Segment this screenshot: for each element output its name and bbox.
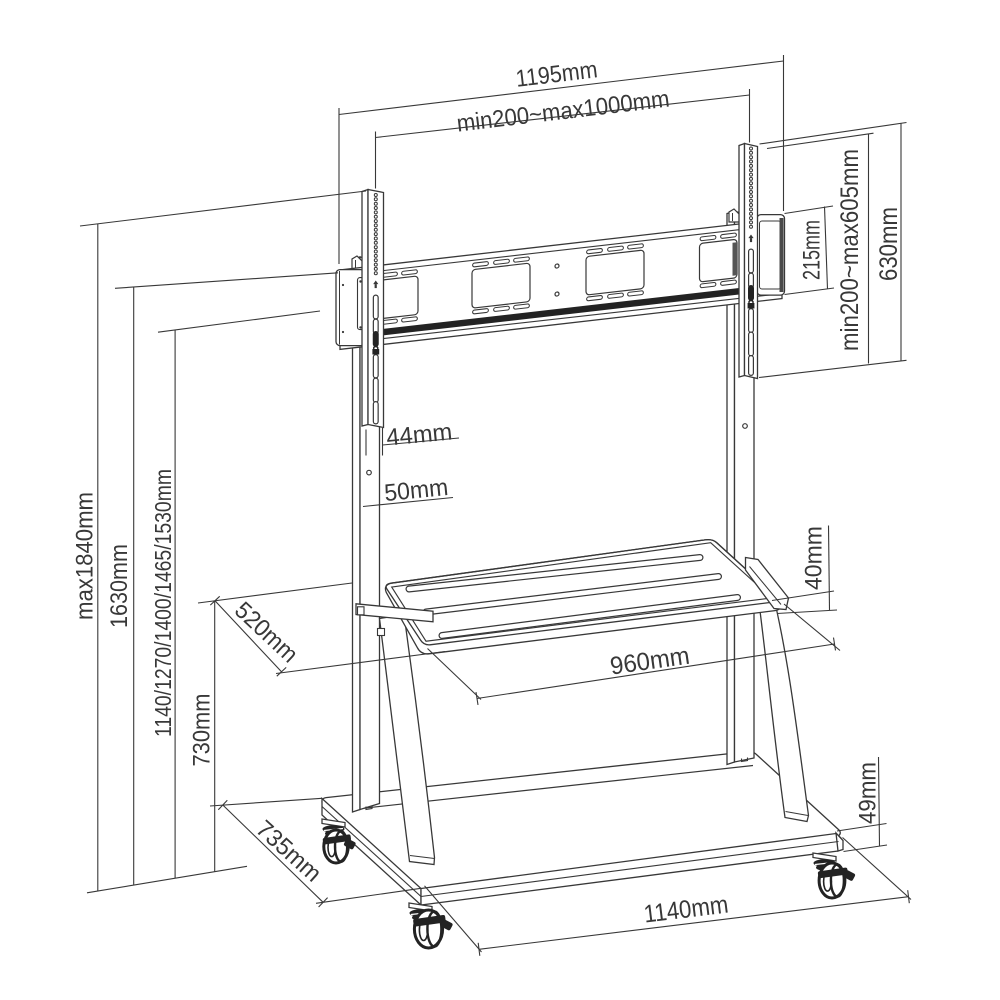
svg-text:min200~max605mm: min200~max605mm [836, 149, 864, 351]
svg-text:215mm: 215mm [799, 220, 826, 280]
svg-text:max1840mm: max1840mm [72, 492, 99, 620]
svg-text:40mm: 40mm [801, 526, 828, 590]
svg-text:730mm: 730mm [189, 694, 216, 767]
svg-text:1140/1270/1400/1465/1530mm: 1140/1270/1400/1465/1530mm [150, 469, 176, 737]
svg-text:1630mm: 1630mm [106, 544, 133, 628]
svg-text:630mm: 630mm [875, 207, 903, 281]
svg-text:49mm: 49mm [855, 762, 882, 824]
